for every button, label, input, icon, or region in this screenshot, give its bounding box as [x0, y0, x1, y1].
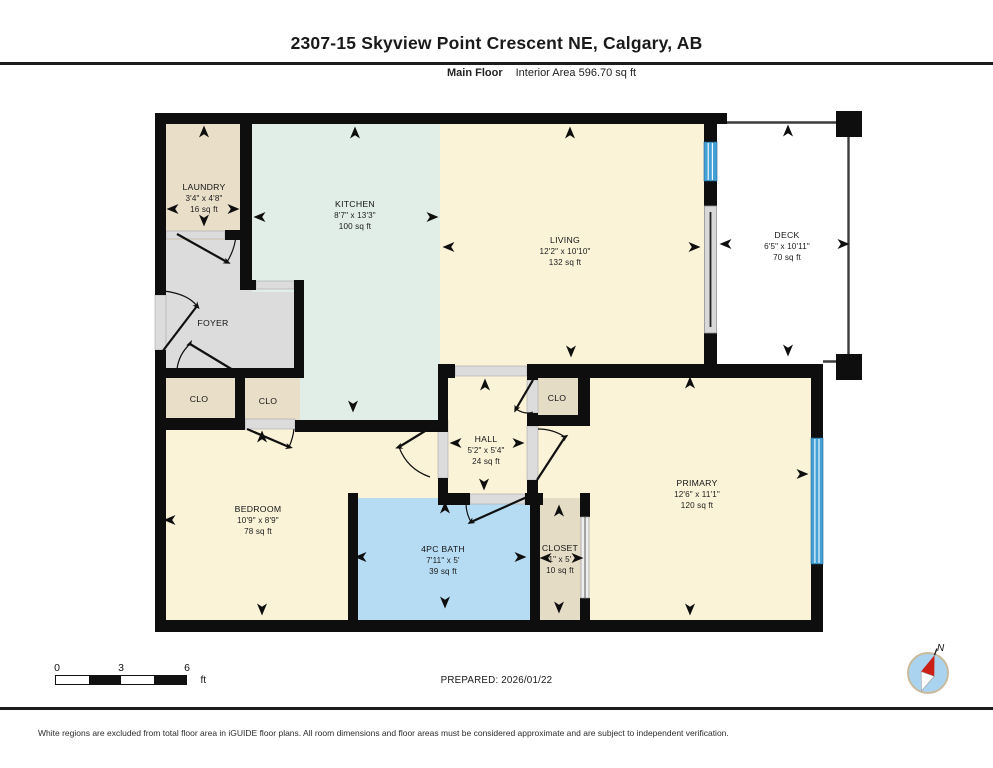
floor-plan-drawing: LAUNDRY 3'4" x 4'8" 16 sq ft KITCHEN 8'7… — [0, 0, 993, 768]
svg-text:100 sq ft: 100 sq ft — [339, 222, 372, 231]
svg-text:132 sq ft: 132 sq ft — [549, 258, 582, 267]
svg-text:16 sq ft: 16 sq ft — [190, 205, 218, 214]
room-label-clo2: CLO — [259, 396, 278, 406]
prepared-date: PREPARED: 2026/01/22 — [0, 675, 993, 686]
svg-text:BEDROOM: BEDROOM — [235, 504, 282, 514]
svg-text:78 sq ft: 78 sq ft — [244, 527, 272, 536]
svg-text:DECK: DECK — [774, 230, 799, 240]
svg-text:6'5" x 10'11": 6'5" x 10'11" — [764, 242, 810, 251]
svg-text:PRIMARY: PRIMARY — [676, 478, 717, 488]
svg-text:10'9" x 8'9": 10'9" x 8'9" — [237, 516, 279, 525]
svg-text:70 sq ft: 70 sq ft — [773, 253, 801, 262]
svg-text:7'11" x 5': 7'11" x 5' — [426, 556, 460, 565]
svg-text:12'2" x 10'10": 12'2" x 10'10" — [540, 247, 591, 256]
svg-text:10 sq ft: 10 sq ft — [546, 566, 574, 575]
svg-text:39 sq ft: 39 sq ft — [429, 567, 457, 576]
svg-text:1" x 5': 1" x 5' — [548, 555, 571, 564]
primary-window-icon — [811, 438, 823, 564]
room-label-clo1: CLO — [190, 394, 209, 404]
disclaimer-text: White regions are excluded from total fl… — [38, 728, 958, 738]
room-label-kitchen: KITCHEN 8'7" x 13'3" 100 sq ft — [334, 199, 376, 231]
svg-text:CLOSET: CLOSET — [542, 543, 579, 553]
footer-divider — [0, 707, 993, 710]
svg-text:HALL: HALL — [475, 434, 498, 444]
svg-text:3'4" x 4'8": 3'4" x 4'8" — [185, 194, 222, 203]
floor-plan-page: 2307-15 Skyview Point Crescent NE, Calga… — [0, 0, 993, 768]
svg-text:12'6" x 11'1": 12'6" x 11'1" — [674, 490, 720, 499]
patio-sliding-door-icon — [705, 206, 717, 333]
scale-tick-0: 0 — [54, 662, 60, 674]
svg-text:120 sq ft: 120 sq ft — [681, 501, 714, 510]
svg-text:8'7" x 13'3": 8'7" x 13'3" — [334, 211, 376, 220]
scale-tick-3: 3 — [118, 662, 124, 674]
room-label-primary: PRIMARY 12'6" x 11'1" 120 sq ft — [674, 478, 720, 510]
compass-icon: N — [900, 640, 958, 700]
svg-text:KITCHEN: KITCHEN — [335, 199, 375, 209]
svg-text:LAUNDRY: LAUNDRY — [182, 182, 225, 192]
scale-tick-6: 6 — [184, 662, 190, 674]
compass-north-label: N — [937, 643, 945, 654]
deck-post-top — [836, 111, 862, 137]
deck-post-bottom — [836, 354, 862, 380]
room-label-clo3: CLO — [548, 393, 567, 403]
living-window-icon — [704, 142, 717, 181]
svg-text:5'2" x 5'4": 5'2" x 5'4" — [467, 446, 504, 455]
svg-text:24 sq ft: 24 sq ft — [472, 457, 500, 466]
svg-text:LIVING: LIVING — [550, 235, 580, 245]
svg-text:4PC BATH: 4PC BATH — [421, 544, 465, 554]
room-label-foyer: FOYER — [197, 318, 228, 328]
scale-bar-ticks: 0 3 6 — [55, 662, 187, 675]
